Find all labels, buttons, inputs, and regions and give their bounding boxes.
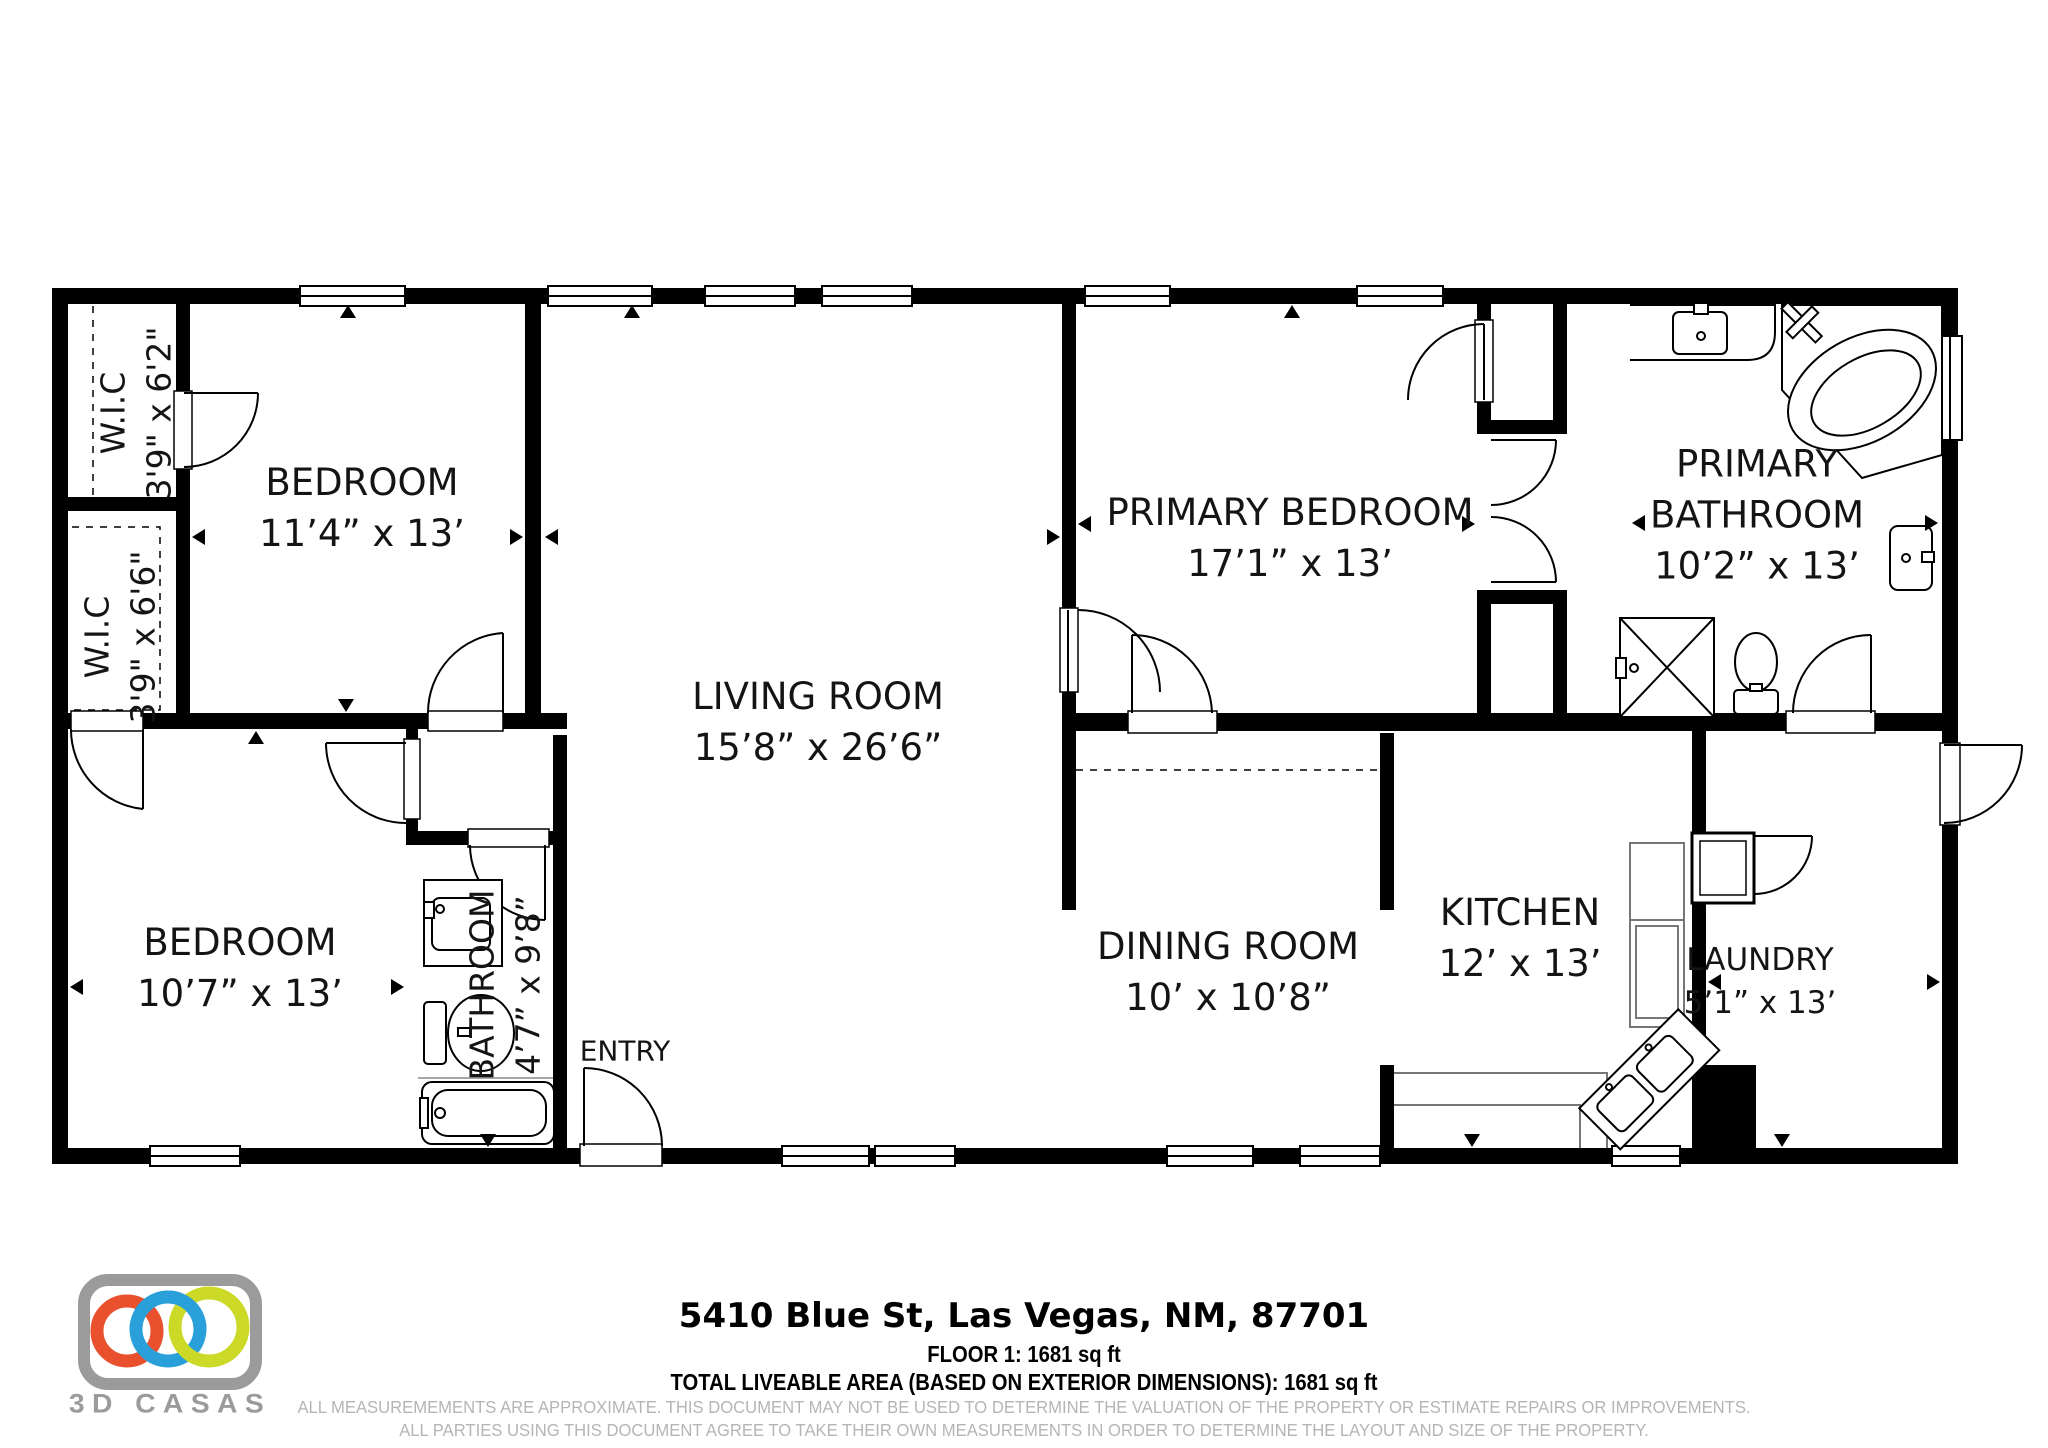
room-label-wic-2: W.I.C 3'9" x 6'6" <box>74 551 165 724</box>
door-swing <box>1754 836 1812 894</box>
floor-plan-page: W.I.C 3'9" x 6'2" W.I.C 3'9" x 6'6" BEDR… <box>0 0 2048 1448</box>
laundry-fixtures <box>1692 833 1754 903</box>
room-label-primary-bathroom: PRIMARY BATHROOM 10’2” x 13’ <box>1582 438 1932 591</box>
room-name: BEDROOM <box>259 457 465 508</box>
room-dims: 3'9" x 6'6" <box>120 551 166 724</box>
door-swing <box>1491 517 1556 582</box>
room-name: LIVING ROOM <box>692 671 944 722</box>
window <box>782 1146 869 1166</box>
room-dims: 10’7” x 13’ <box>137 968 343 1019</box>
toilet <box>1734 633 1778 714</box>
room-label-dining-room: DINING ROOM 10’ x 10’8” <box>1097 921 1359 1023</box>
room-name: PRIMARY BEDROOM <box>1106 487 1473 538</box>
window <box>1167 1146 1253 1166</box>
room-dims: 10’2” x 13’ <box>1582 541 1932 592</box>
door-swing <box>71 729 143 809</box>
door-swing <box>1491 440 1556 505</box>
total-area-line: TOTAL LIVEABLE AREA (BASED ON EXTERIOR D… <box>123 1369 1925 1396</box>
floor-plan-drawing <box>0 0 2048 1448</box>
room-label-primary-bedroom: PRIMARY BEDROOM 17’1” x 13’ <box>1106 487 1473 589</box>
room-name: PRIMARY BATHROOM <box>1582 438 1932 540</box>
room-label-wic-1: W.I.C 3'9" x 6'2" <box>90 327 181 500</box>
room-dims: 17’1” x 13’ <box>1106 538 1473 589</box>
door-swing <box>1408 324 1484 400</box>
room-label-kitchen: KITCHEN 12’ x 13’ <box>1438 887 1601 989</box>
room-label-laundry: LAUNDRY 5’1” x 13’ <box>1684 939 1837 1025</box>
kitchen-peninsula <box>1394 1073 1607 1148</box>
room-dims: 4’7” x 9’8” <box>505 890 551 1081</box>
room-dims: 15’8” x 26’6” <box>692 722 944 773</box>
sink-vanity <box>1630 303 1775 360</box>
window <box>1612 1146 1680 1166</box>
window <box>1085 286 1170 306</box>
disclaimer-line-2: ALL PARTIES USING THIS DOCUMENT AGREE TO… <box>51 1420 1997 1441</box>
window <box>1357 286 1443 306</box>
door-swing <box>184 393 258 467</box>
floor-area-line: FLOOR 1: 1681 sq ft <box>123 1341 1925 1368</box>
window <box>300 286 405 306</box>
window <box>150 1146 240 1166</box>
room-label-bedroom-bottom-left: BEDROOM 10’7” x 13’ <box>137 917 343 1019</box>
door-swing <box>428 633 503 713</box>
room-label-entry: ENTRY <box>580 1033 671 1072</box>
room-label-bathroom: BATHROOM 4’7” x 9’8” <box>459 890 550 1081</box>
door-swing <box>1132 635 1212 713</box>
shower <box>1616 618 1714 717</box>
window <box>875 1146 955 1166</box>
room-dims: 11’4” x 13’ <box>259 508 465 559</box>
appliance <box>1700 841 1746 895</box>
door-swing <box>584 1068 662 1146</box>
room-label-bedroom-top-left: BEDROOM 11’4” x 13’ <box>259 457 465 559</box>
room-dims: 3'9" x 6'2" <box>136 327 182 500</box>
door-swing <box>326 743 406 823</box>
disclaimer-line-1: ALL MEASUREMEMENTS ARE APPROXIMATE. THIS… <box>51 1397 1997 1418</box>
room-name: W.I.C <box>90 327 136 500</box>
door-swing <box>1068 610 1160 692</box>
property-address: 5410 Blue St, Las Vegas, NM, 87701 <box>0 1296 2048 1336</box>
window <box>548 286 652 306</box>
room-dims: 12’ x 13’ <box>1438 938 1601 989</box>
room-label-living-room: LIVING ROOM 15’8” x 26’6” <box>692 671 944 773</box>
room-dims: 10’ x 10’8” <box>1097 972 1359 1023</box>
room-name: ENTRY <box>580 1033 671 1072</box>
room-name: DINING ROOM <box>1097 921 1359 972</box>
kitchen-counter <box>1630 843 1684 1027</box>
room-name: KITCHEN <box>1438 887 1601 938</box>
door-swing <box>1793 635 1871 713</box>
window <box>822 286 912 306</box>
room-dims: 5’1” x 13’ <box>1684 982 1837 1025</box>
room-name: BEDROOM <box>137 917 343 968</box>
room-name: W.I.C <box>74 551 120 724</box>
window <box>1300 1146 1380 1166</box>
window <box>705 286 795 306</box>
room-name: LAUNDRY <box>1684 939 1837 982</box>
room-name: BATHROOM <box>459 890 505 1081</box>
